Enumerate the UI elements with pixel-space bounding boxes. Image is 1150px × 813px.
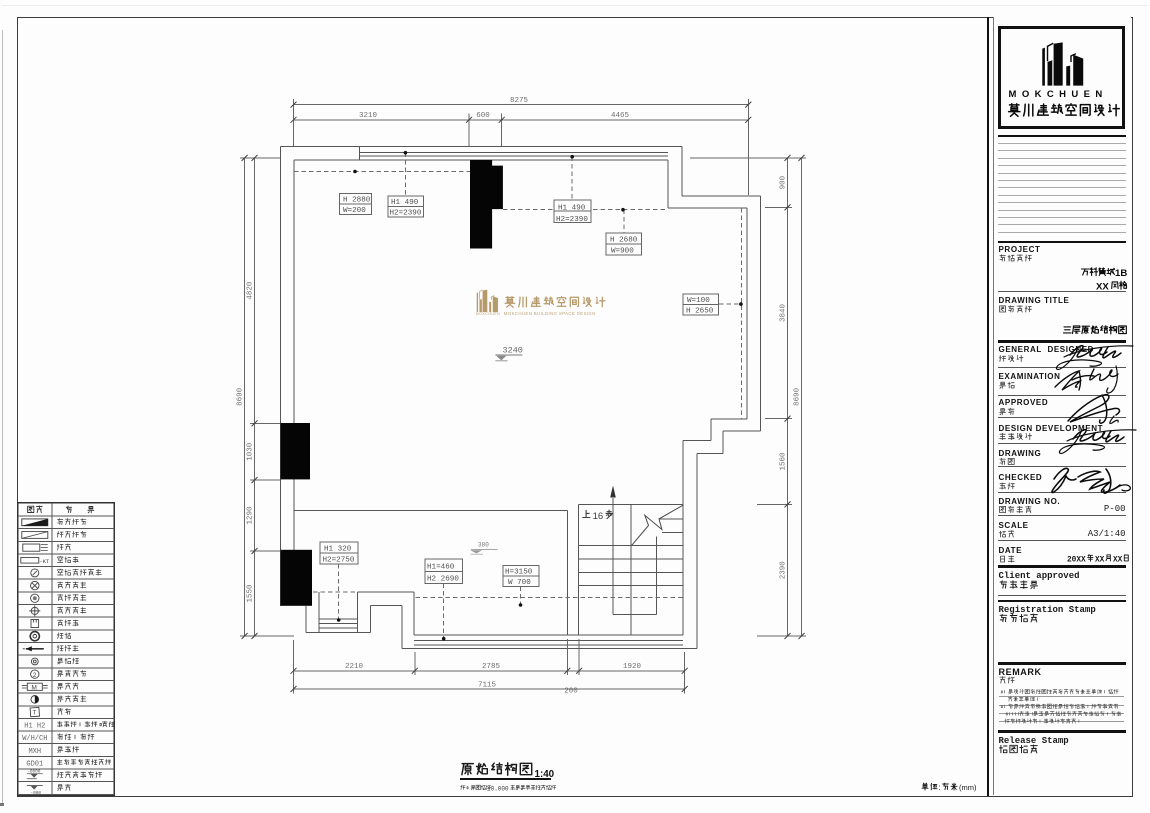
svg-text:XX: XX: [1113, 556, 1123, 564]
svg-text:20XX: 20XX: [1067, 556, 1086, 564]
svg-text:XX: XX: [1095, 556, 1105, 564]
